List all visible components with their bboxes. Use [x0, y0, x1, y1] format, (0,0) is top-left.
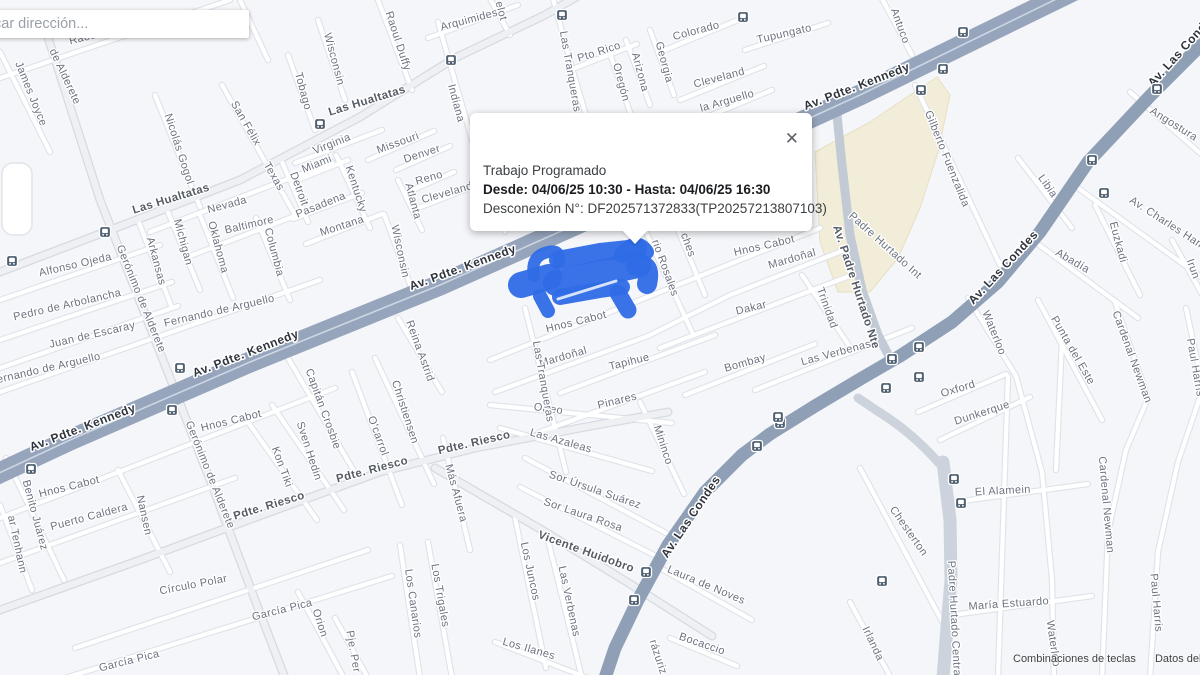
street-label: Fernando de Arguello: [163, 292, 276, 329]
street-label: Wisconsin: [321, 32, 346, 87]
street-label: Kon Tiki: [269, 445, 295, 489]
street-label: Pdte. Riesco: [437, 429, 512, 457]
street-label: Columbia: [262, 227, 287, 279]
disconnection-area-polygon[interactable]: [521, 246, 648, 311]
street-label: Christiensen: [389, 379, 421, 445]
transit-stop-icon[interactable]: [914, 372, 925, 383]
street-label: Tupungato: [756, 22, 813, 46]
keyboard-shortcuts-link[interactable]: Combinaciones de teclas: [1013, 653, 1136, 665]
street-label: Trinidad: [814, 286, 840, 330]
street-labels: Raoul DuffyJames Joycede AldereteNicolás…: [0, 0, 1200, 675]
map-viewport: Raoul DuffyJames Joycede AldereteNicolás…: [0, 0, 1200, 675]
street-label: Denver: [402, 143, 442, 166]
transit-stop-icon[interactable]: [877, 576, 888, 587]
street-label: Laura de Noves: [666, 563, 747, 607]
street-label: Arizona: [629, 51, 651, 93]
street-label: Hnos Cabot: [38, 474, 101, 501]
transit-stop-icon[interactable]: [629, 595, 640, 606]
street-label: Av. Las Condes: [658, 473, 723, 560]
transit-stop-icon[interactable]: [557, 10, 568, 21]
transit-stop-icon[interactable]: [916, 85, 927, 96]
street-label: García Pica: [98, 648, 161, 675]
transit-stop-icon[interactable]: [949, 474, 960, 485]
transit-stop-icon[interactable]: [315, 119, 326, 130]
transit-stop-icon[interactable]: [641, 567, 652, 578]
street-label: Waterloo: [979, 309, 1008, 357]
map-roads: [0, 0, 1200, 675]
street-label: ar Tenhann: [5, 514, 29, 574]
street-label: García Pica: [251, 597, 314, 624]
street-label: Las Verbenas: [556, 565, 583, 638]
map-canvas[interactable]: Raoul DuffyJames Joycede AldereteNicolás…: [0, 0, 1200, 675]
map-data-link[interactable]: Datos del mapa: [1155, 653, 1200, 665]
street-label: Más Afuera: [442, 463, 469, 524]
transit-stop-icon[interactable]: [7, 256, 18, 267]
popup-schedule: Desde: 04/06/25 10:30 - Hasta: 04/06/25 …: [483, 180, 802, 199]
street-label: Raoul Duffy: [383, 10, 414, 72]
street-label: Wisconsin: [388, 224, 411, 279]
transit-stop-icon[interactable]: [938, 64, 949, 75]
transit-stop-icon[interactable]: [956, 498, 967, 509]
transit-stop-icon[interactable]: [1152, 84, 1163, 95]
transit-stop-icon[interactable]: [881, 383, 892, 394]
work-info-popup: ✕ Trabajo Programado Desde: 04/06/25 10:…: [470, 113, 812, 231]
street-label: rázuriz: [647, 638, 669, 675]
transit-stop-icon[interactable]: [773, 412, 784, 423]
street-label: Pinares: [596, 390, 638, 411]
street-label: Oregón: [610, 62, 632, 103]
street-label: Paul Harris: [1184, 337, 1200, 397]
street-label: Fernando de Arguello: [0, 350, 102, 387]
street-label: Los Trigales: [428, 563, 451, 628]
transit-stop-icon[interactable]: [738, 12, 749, 23]
popup-title: Trabajo Programado: [483, 161, 802, 180]
close-icon[interactable]: ✕: [785, 130, 799, 147]
transit-stop-icon[interactable]: [752, 441, 763, 452]
street-label: El Alamein: [975, 484, 1032, 499]
street-label: Kentucky: [343, 164, 369, 214]
popup-tail: [622, 230, 648, 244]
street-label: Pje. Per: [343, 630, 362, 674]
street-label: Sven Hedin: [294, 420, 324, 482]
street-label: San Félix: [228, 99, 263, 148]
street-label: Av. Las Condes: [965, 228, 1040, 308]
search-input[interactable]: [0, 10, 249, 38]
street-label: Arquimides: [439, 7, 499, 34]
street-label: Antuco: [888, 7, 912, 46]
street-label: Paul Harris: [1147, 573, 1164, 633]
transit-stop-icon[interactable]: [100, 227, 111, 238]
street-label: Angostura: [1148, 105, 1200, 144]
street-label: Mininco: [651, 424, 675, 466]
street-label: Montana: [319, 213, 367, 239]
popup-disconnection-number: Desconexión N°: DF202571372833(TP2025721…: [483, 199, 802, 218]
street-label: Nevada: [206, 194, 249, 216]
street-label: Reina Astrid: [403, 319, 436, 383]
transit-stop-icon[interactable]: [1087, 155, 1098, 166]
street-label: Tobago: [292, 71, 314, 111]
transit-stop-icon[interactable]: [958, 27, 969, 38]
transit-stop-icon[interactable]: [26, 464, 37, 475]
street-label: Irlanda: [860, 625, 886, 664]
transit-stop-icon[interactable]: [1099, 188, 1110, 199]
transit-stop-icon[interactable]: [446, 55, 457, 66]
street-label: Los Juncos: [518, 541, 542, 602]
street-label: Arkansas: [144, 236, 168, 287]
street-label: Las Tranqueras: [557, 30, 583, 113]
building-footprint: [2, 163, 32, 235]
street-label: Punta del Este: [1048, 314, 1097, 387]
street-label: Cardenal Newman: [1110, 309, 1154, 404]
street-label: O'carrol: [365, 414, 390, 457]
transit-stop-icon[interactable]: [167, 405, 178, 416]
transit-stop-icon[interactable]: [175, 363, 186, 374]
street-label: Michigan: [171, 218, 195, 267]
street-label: Círculo Polar: [159, 573, 229, 598]
map-attribution: Combinaciones de teclas Datos del mapa: [1013, 653, 1200, 665]
street-label: Los Canarios: [402, 568, 424, 639]
street-label: Nicolás Gogol: [162, 112, 196, 186]
transit-stop-icon[interactable]: [914, 342, 925, 353]
transit-stop-icon[interactable]: [887, 354, 898, 365]
